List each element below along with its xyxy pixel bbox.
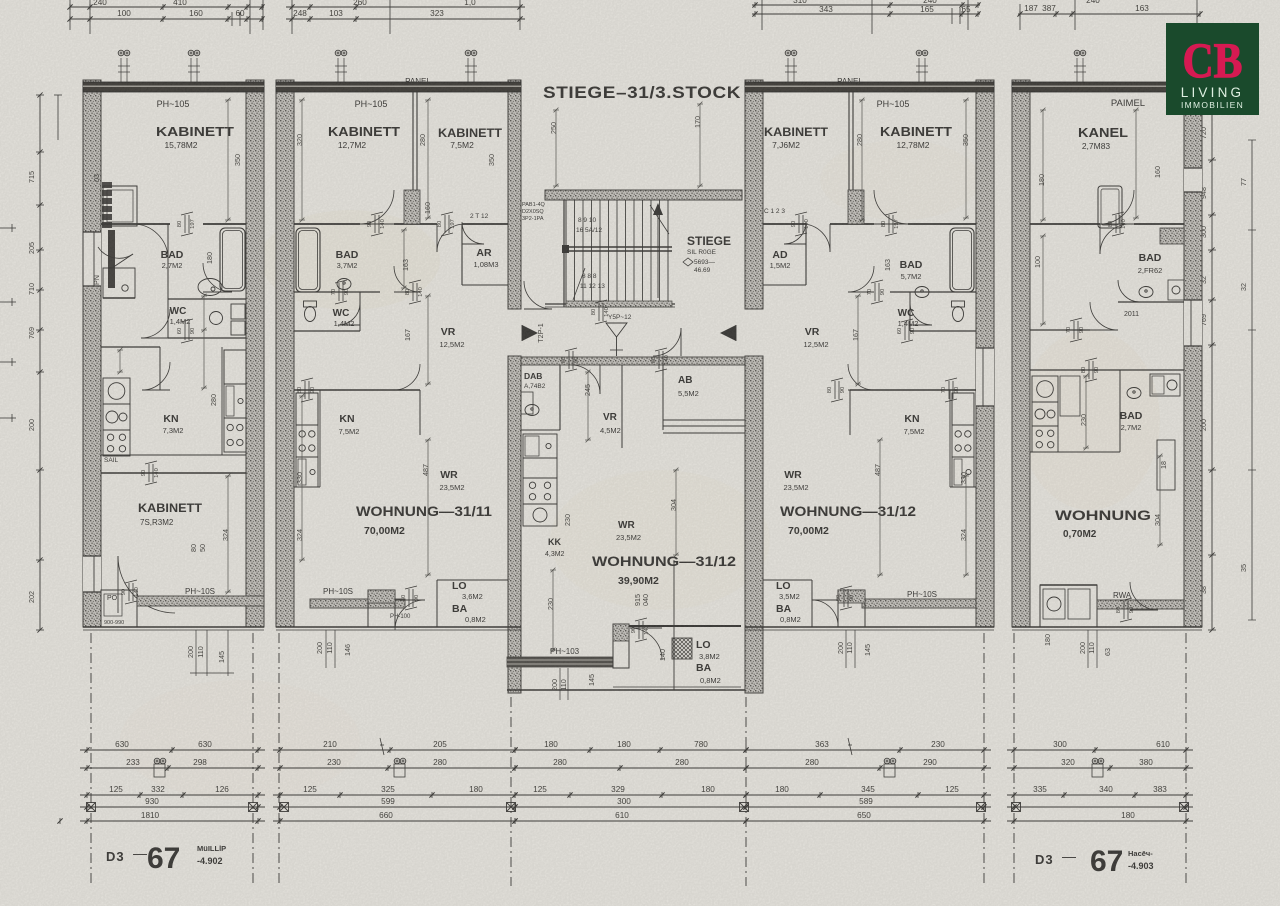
- svg-text:LIVING: LIVING: [1181, 85, 1244, 100]
- svg-text:IMMOBILIEN: IMMOBILIEN: [1181, 100, 1244, 110]
- svg-text:CB: CB: [1183, 32, 1243, 88]
